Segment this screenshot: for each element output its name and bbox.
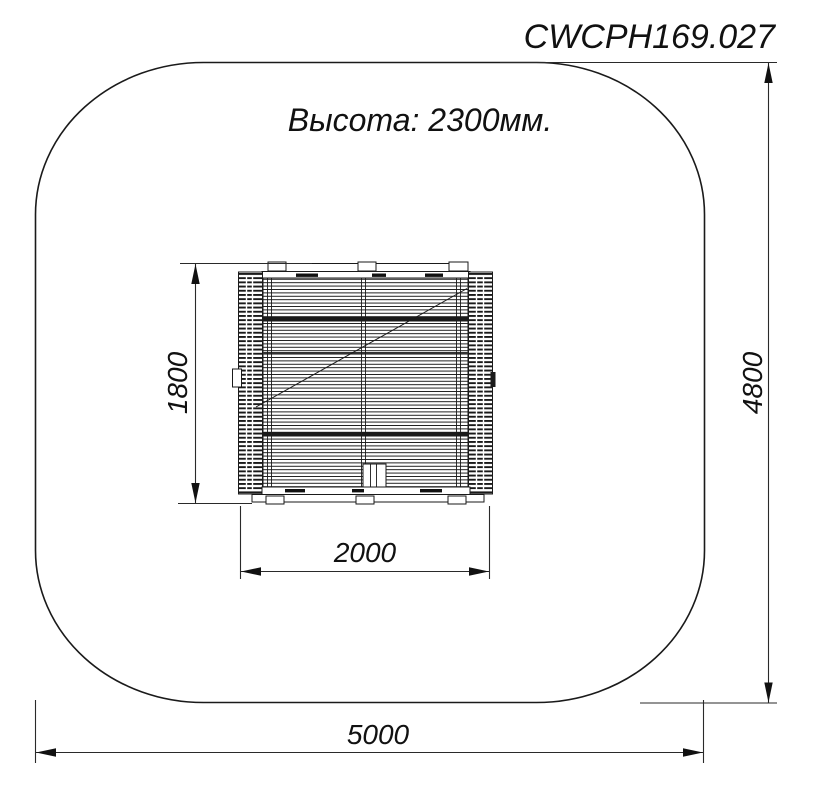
left-fitting [233, 369, 242, 387]
site-plan: CWCPH169.027 Высота: 2300мм. [0, 0, 817, 788]
top-tab-center [358, 262, 376, 271]
arrowhead-left [241, 567, 261, 575]
dim-5000: 5000 [36, 700, 704, 763]
arrowhead-up [764, 63, 772, 83]
left-ladder-strip [239, 272, 263, 494]
arrowhead-up [191, 264, 199, 284]
bottom-bar-dash [352, 489, 364, 492]
top-tab-right [449, 262, 468, 271]
height-note: Высота: 2300мм. [288, 102, 553, 138]
dim-label-1800: 1800 [162, 351, 193, 414]
arrowhead-right [683, 748, 703, 756]
dim-4800: 4800 [500, 63, 777, 704]
arrowhead-down [191, 483, 199, 503]
top-bar-dash [296, 274, 318, 277]
top-bar-dash [425, 274, 443, 277]
dim-label-4800: 4800 [737, 351, 768, 414]
bottom-tab-right [448, 496, 466, 504]
arrowhead-right [469, 567, 489, 575]
bottom-tab-left [266, 496, 284, 504]
drawing-canvas: CWCPH169.027 Высота: 2300мм. [0, 0, 817, 788]
dim-label-2000: 2000 [333, 537, 397, 568]
arrowhead-left [36, 748, 56, 756]
arrowhead-down [764, 683, 772, 703]
right-fitting [491, 372, 496, 387]
dim-2000: 2000 [241, 506, 490, 579]
hatch-opening [363, 464, 386, 487]
dim-label-5000: 5000 [347, 719, 410, 750]
equipment-top-view [233, 262, 496, 504]
top-bar-dash [372, 274, 386, 277]
bottom-bar-dash [285, 489, 305, 492]
bottom-tab-center [356, 496, 374, 504]
bottom-bar-dash [420, 489, 442, 492]
right-ladder-strip [469, 272, 493, 494]
drawing-code: CWCPH169.027 [524, 18, 776, 56]
